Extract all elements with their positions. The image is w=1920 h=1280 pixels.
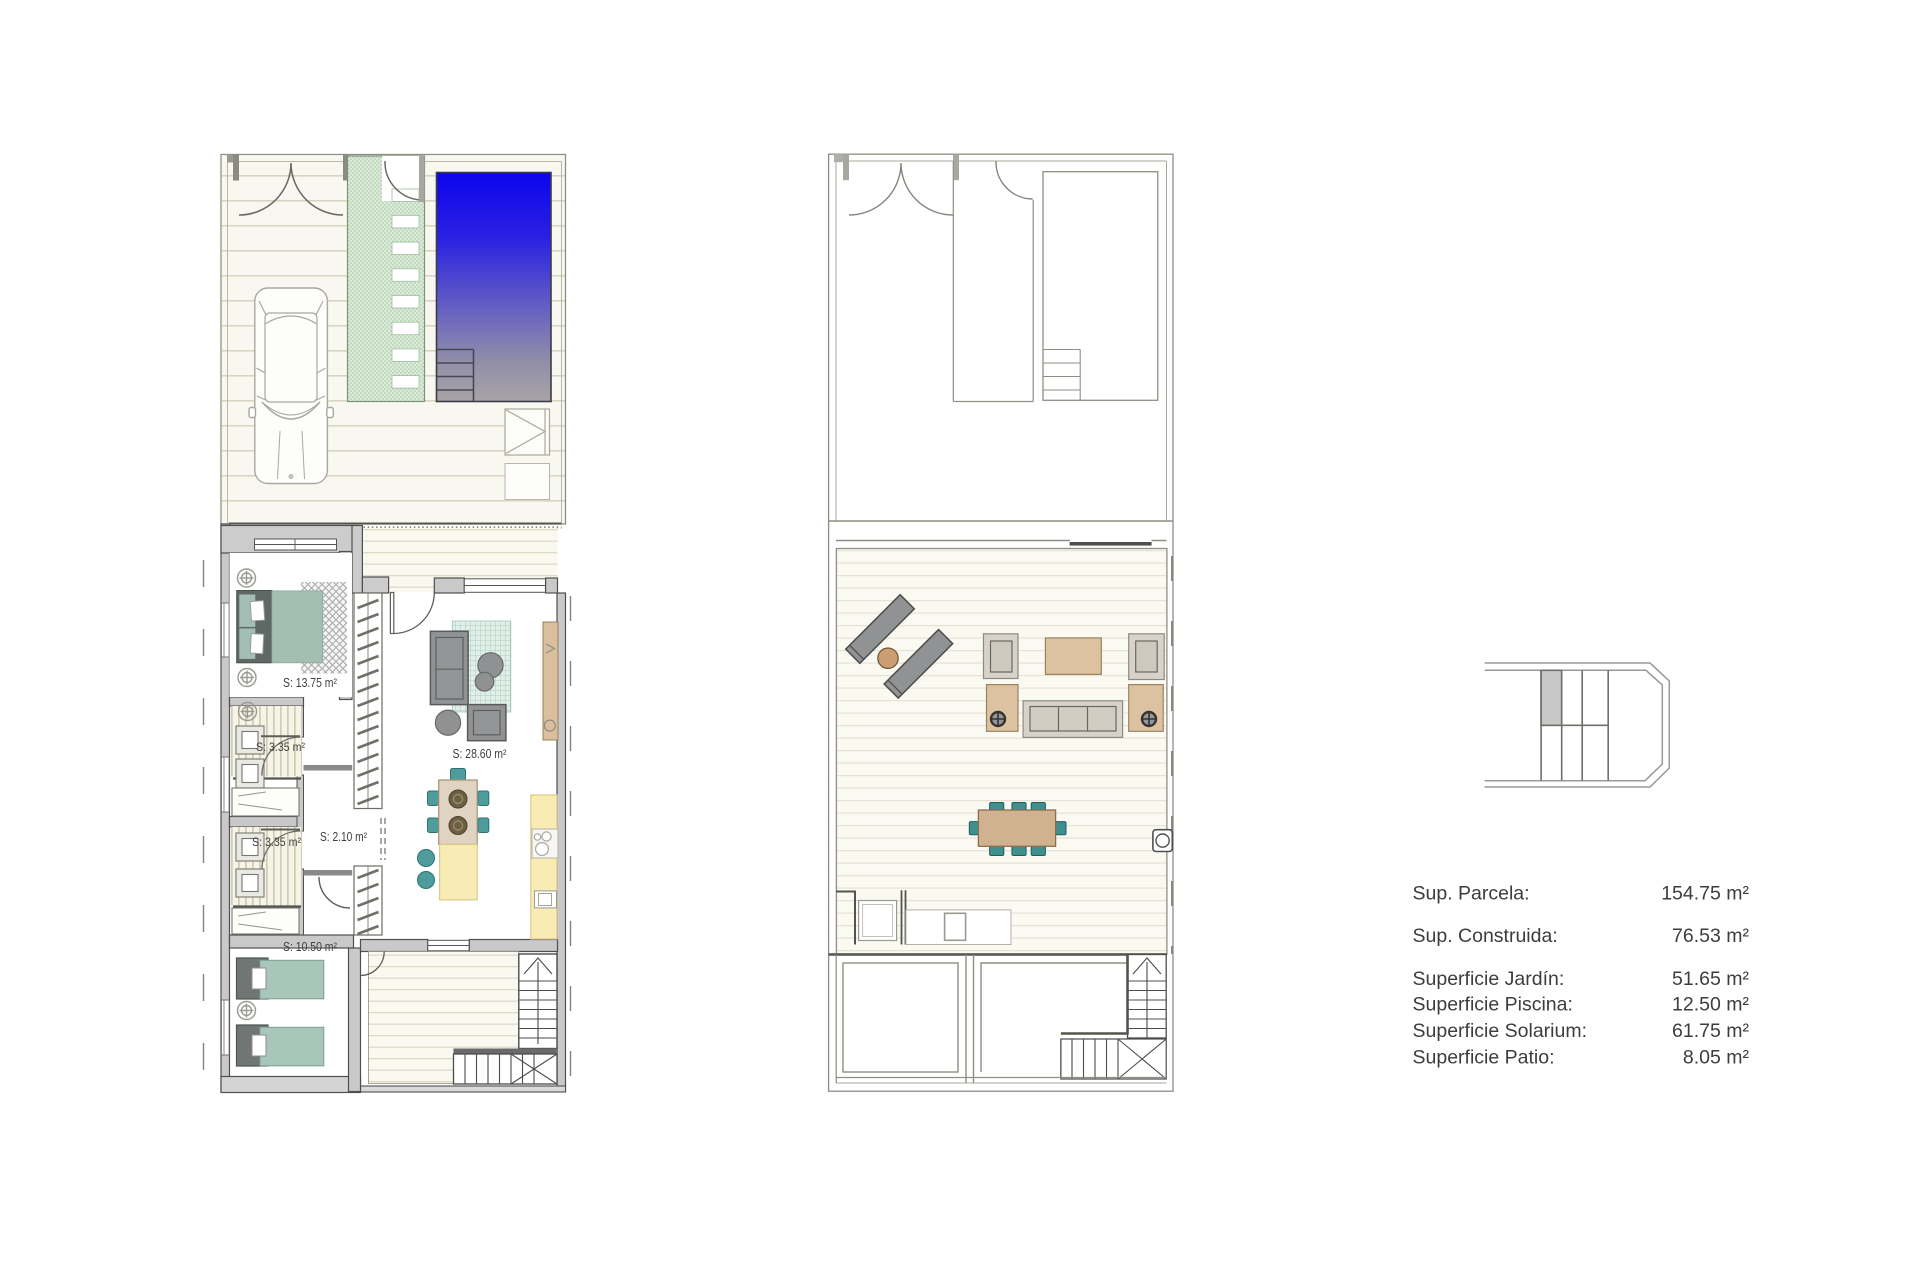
svg-text:S: 28.60 m²: S: 28.60 m² (453, 746, 508, 761)
svg-text:Superficie Piscina:: Superficie Piscina: (1413, 994, 1573, 1016)
svg-text:Superficie Jardín:: Superficie Jardín: (1413, 968, 1565, 990)
svg-text:S: 10.50 m²: S: 10.50 m² (283, 939, 338, 954)
svg-text:12.50 m²: 12.50 m² (1672, 994, 1749, 1016)
svg-text:Sup. Construida:: Sup. Construida: (1413, 925, 1558, 947)
svg-text:Superficie Solarium:: Superficie Solarium: (1413, 1020, 1588, 1042)
svg-text:154.75 m²: 154.75 m² (1661, 883, 1749, 905)
svg-text:76.53 m²: 76.53 m² (1672, 925, 1749, 947)
svg-text:S: 2.10 m²: S: 2.10 m² (320, 829, 368, 844)
svg-text:S: 13.75 m²: S: 13.75 m² (283, 675, 338, 690)
svg-text:Sup. Parcela:: Sup. Parcela: (1413, 883, 1530, 905)
svg-text:S: 3.35 m²: S: 3.35 m² (256, 740, 305, 754)
svg-text:Superficie Patio:: Superficie Patio: (1413, 1047, 1555, 1069)
svg-text:51.65 m²: 51.65 m² (1672, 968, 1749, 990)
svg-text:8.05 m²: 8.05 m² (1683, 1047, 1750, 1069)
svg-text:S: 3.35 m²: S: 3.35 m² (252, 835, 301, 849)
svg-text:61.75 m²: 61.75 m² (1672, 1020, 1749, 1042)
